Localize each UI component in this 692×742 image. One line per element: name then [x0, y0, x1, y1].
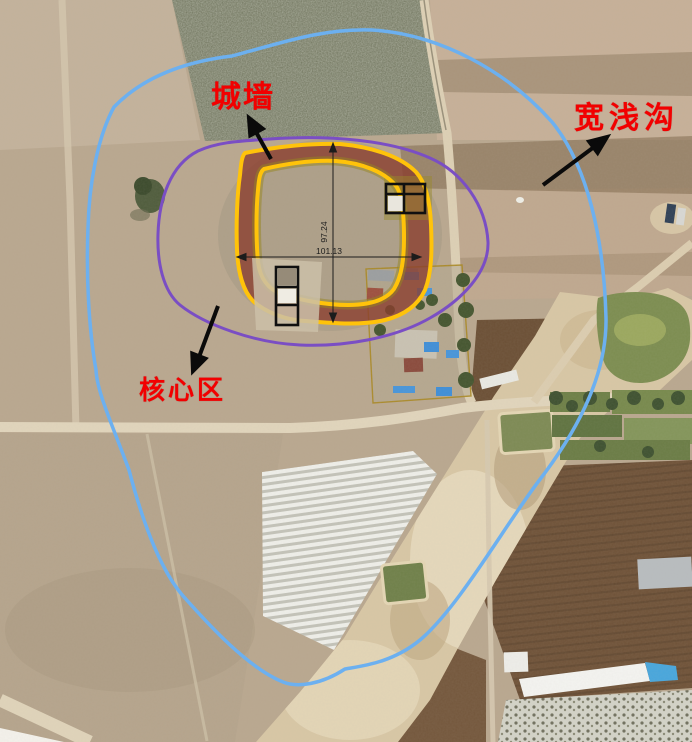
trench-cell-dark	[278, 269, 296, 285]
ditch-label: 宽浅沟	[574, 104, 679, 134]
wall-label: 城墙	[211, 83, 275, 113]
trench-cell-sand	[388, 196, 403, 211]
core-label: 核心区	[139, 377, 226, 403]
trench-stack-sw	[252, 258, 322, 332]
dimension-height-value: 97.24	[319, 221, 329, 243]
dimension-width-value: 101.13	[316, 246, 342, 256]
trench-cell-white	[278, 289, 296, 303]
aerial-figure: 97.24 101.13 城墙 宽浅沟 核心区	[0, 0, 692, 742]
